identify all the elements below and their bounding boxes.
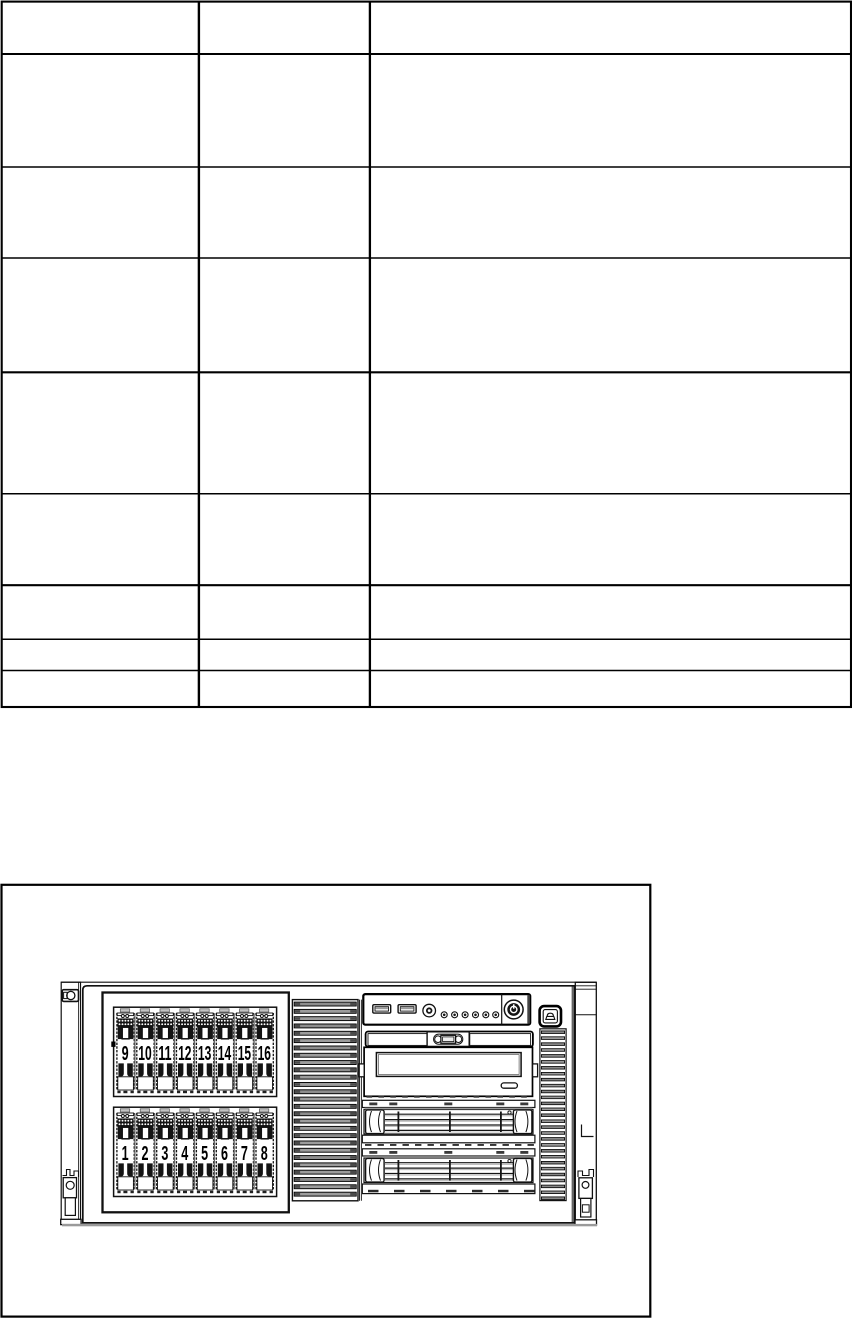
svg-text:16: 16 <box>258 1043 271 1065</box>
svg-text:3: 3 <box>161 1143 168 1165</box>
svg-text:9: 9 <box>122 1043 129 1065</box>
svg-text:12: 12 <box>178 1043 191 1065</box>
svg-text:15: 15 <box>238 1043 251 1065</box>
svg-text:14: 14 <box>218 1043 232 1065</box>
svg-text:7: 7 <box>241 1143 248 1165</box>
svg-text:11: 11 <box>158 1043 171 1065</box>
svg-text:4: 4 <box>181 1143 188 1165</box>
svg-text:8: 8 <box>261 1143 268 1165</box>
svg-text:5: 5 <box>201 1143 208 1165</box>
svg-text:10: 10 <box>138 1043 151 1065</box>
svg-text:2: 2 <box>142 1143 149 1165</box>
svg-text:1: 1 <box>122 1143 129 1165</box>
svg-text:6: 6 <box>221 1143 228 1165</box>
svg-text:13: 13 <box>198 1043 211 1065</box>
